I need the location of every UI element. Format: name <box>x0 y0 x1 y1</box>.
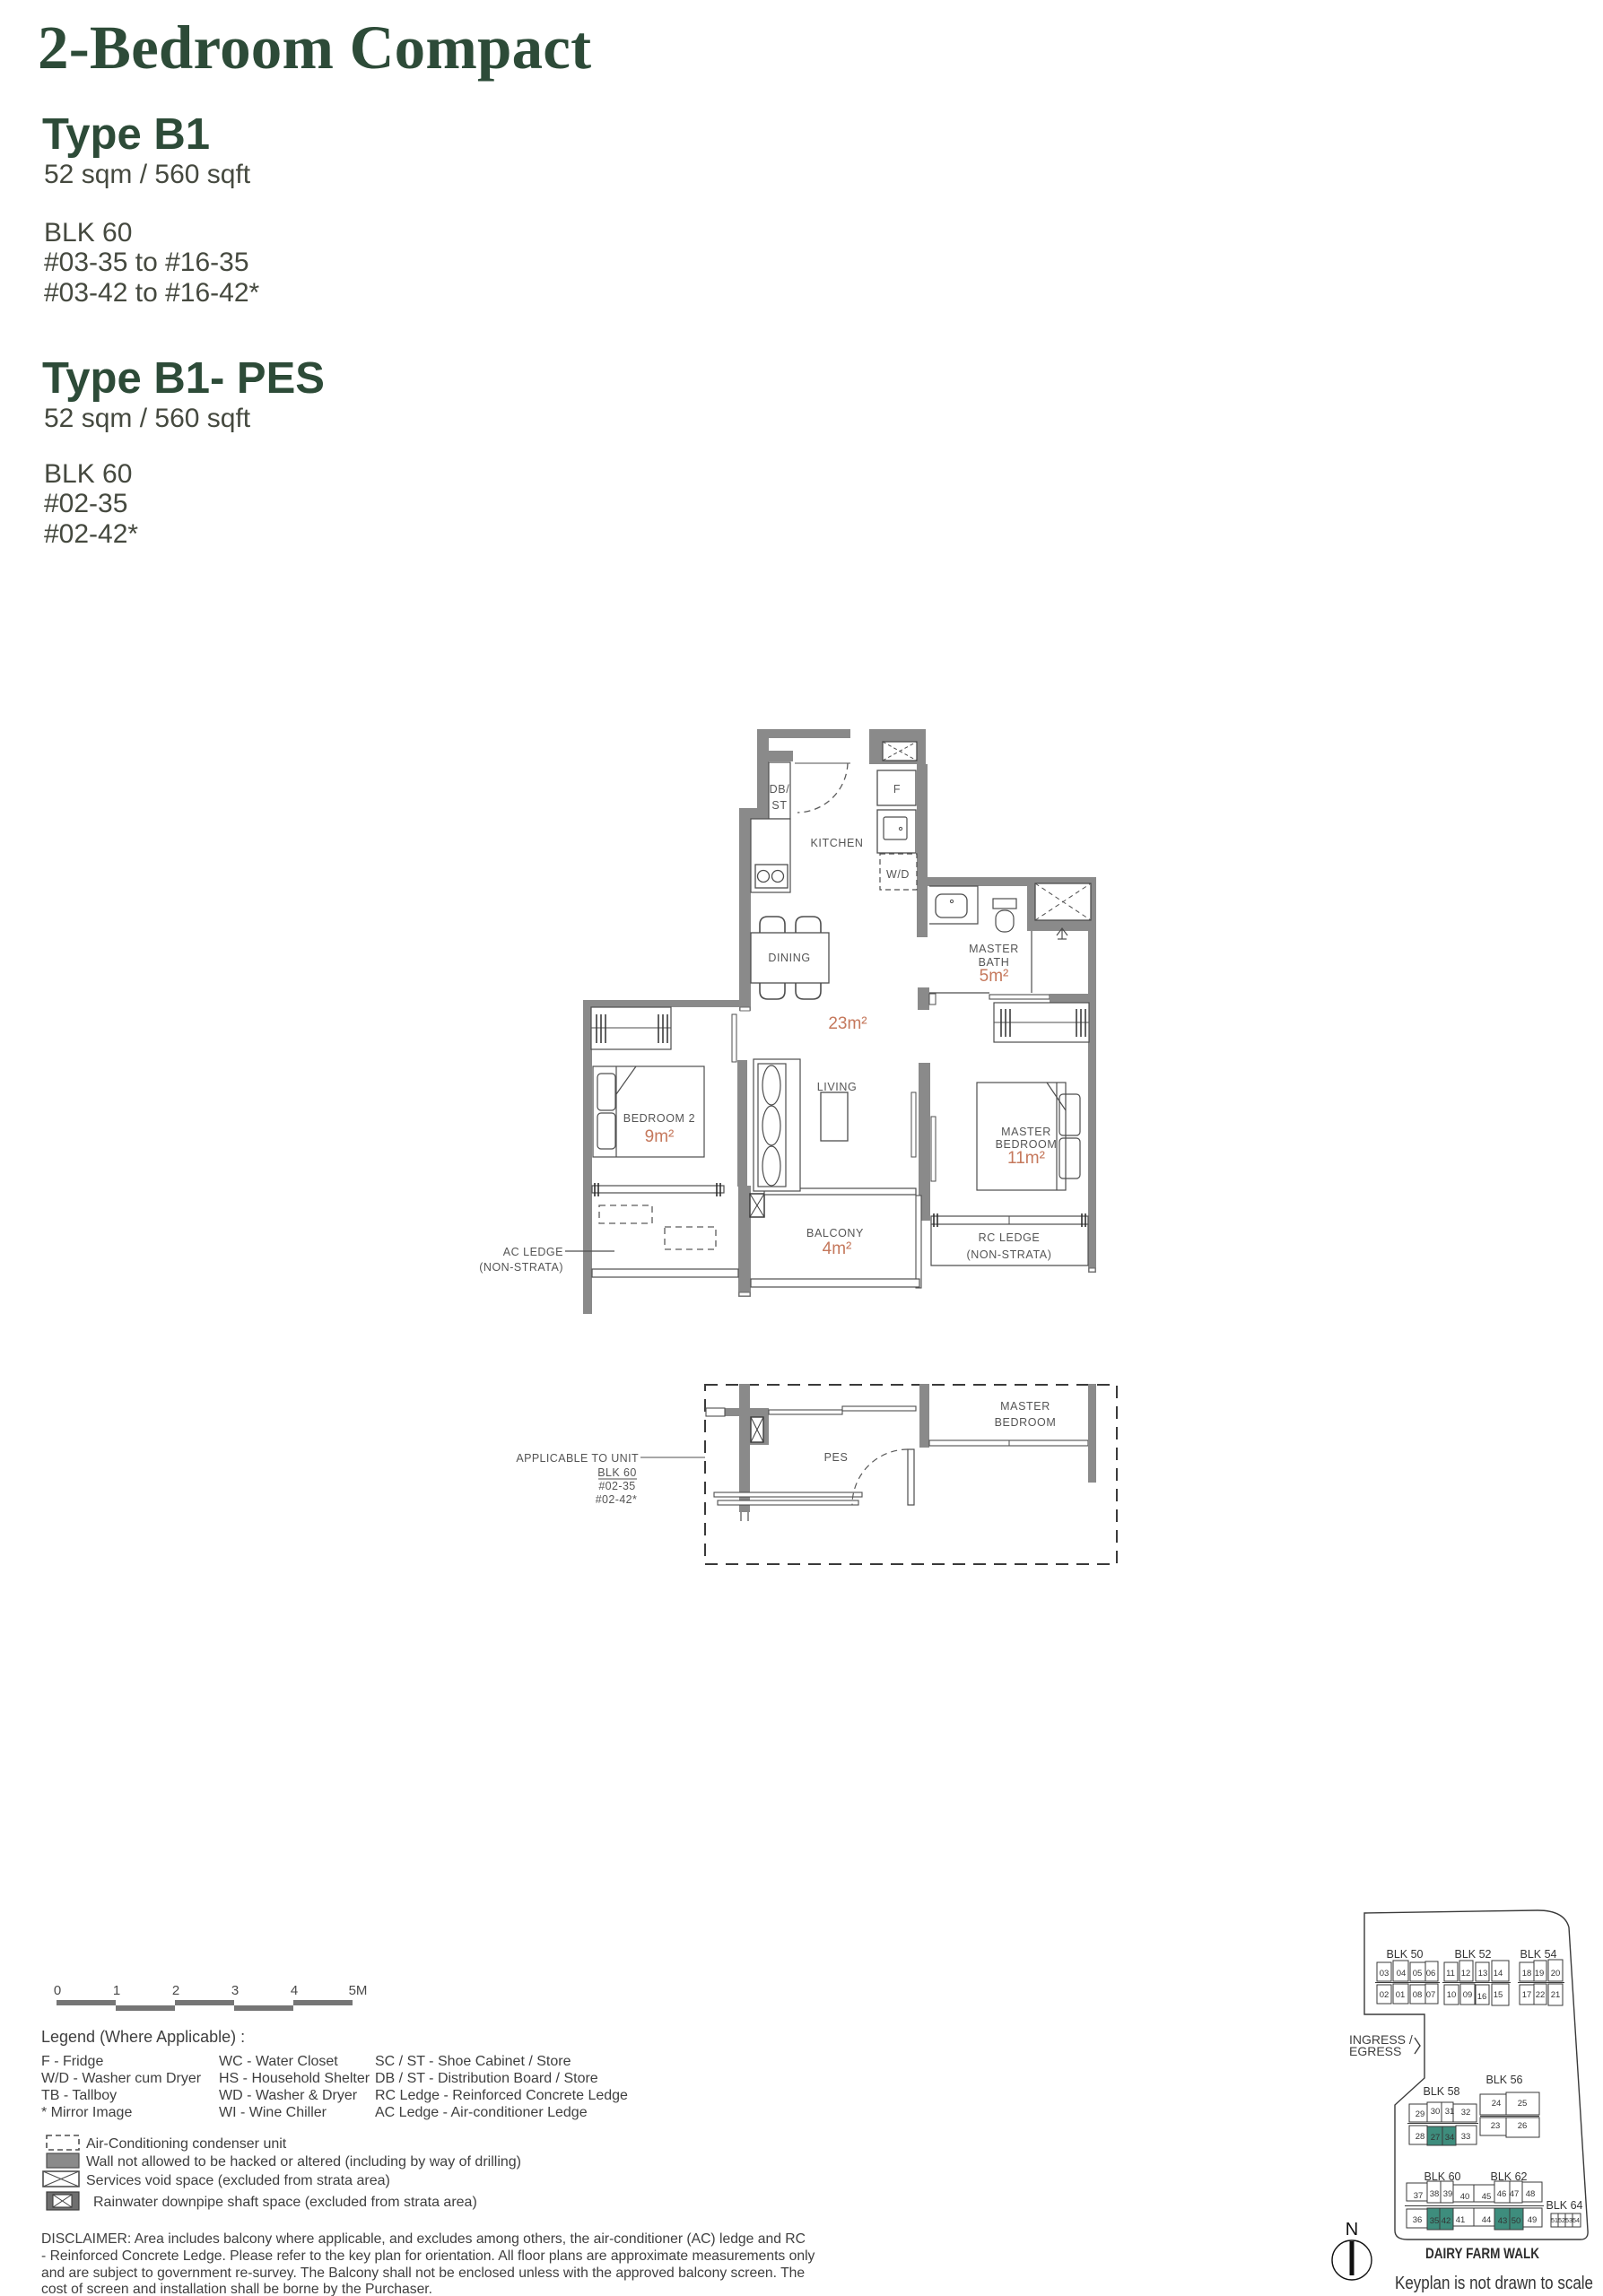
svg-text:42: 42 <box>1442 2216 1451 2226</box>
svg-text:09: 09 <box>1463 1990 1473 2000</box>
svg-text:LIVING: LIVING <box>817 1081 858 1093</box>
svg-text:EGRESS: EGRESS <box>1349 2044 1401 2058</box>
svg-text:RC LEDGE: RC LEDGE <box>979 1231 1041 1244</box>
svg-text:Keyplan is not drawn to scale: Keyplan is not drawn to scale <box>1395 2274 1593 2293</box>
svg-text:38: 38 <box>1430 2189 1440 2199</box>
svg-text:2-Bedroom Compact: 2-Bedroom Compact <box>38 13 591 82</box>
svg-text:MASTER: MASTER <box>1001 1126 1051 1138</box>
svg-text:MASTER: MASTER <box>1000 1400 1050 1413</box>
svg-text:#03-42 to #16-42*: #03-42 to #16-42* <box>44 278 260 308</box>
svg-text:(NON-STRATA): (NON-STRATA) <box>479 1261 563 1274</box>
svg-text:2: 2 <box>172 1983 179 1998</box>
svg-text:53: 53 <box>1565 2218 1573 2224</box>
svg-text:54: 54 <box>1573 2218 1580 2224</box>
svg-text:21: 21 <box>1551 1990 1561 2000</box>
svg-text:24: 24 <box>1492 2099 1502 2109</box>
svg-text:05: 05 <box>1413 1969 1423 1979</box>
svg-text:W/D - Washer cum Dryer: W/D - Washer cum Dryer <box>41 2071 202 2086</box>
svg-text:- Reinforced Concrete Ledge. P: - Reinforced Concrete Ledge. Please refe… <box>41 2248 815 2264</box>
svg-text:34: 34 <box>1445 2133 1455 2143</box>
svg-text:AC Ledge - Air-conditioner Led: AC Ledge - Air-conditioner Ledge <box>375 2105 588 2120</box>
svg-text:#02-35: #02-35 <box>598 1480 635 1492</box>
svg-text:5m²: 5m² <box>980 967 1009 986</box>
svg-text:DB / ST - Distribution Board /: DB / ST - Distribution Board / Store <box>375 2071 598 2086</box>
svg-text:* Mirror Image: * Mirror Image <box>41 2105 132 2120</box>
svg-text:37: 37 <box>1414 2191 1424 2201</box>
svg-text:52 sqm / 560 sqft: 52 sqm / 560 sqft <box>44 404 251 433</box>
svg-text:BLK 64: BLK 64 <box>1546 2199 1582 2212</box>
svg-text:41: 41 <box>1456 2215 1466 2225</box>
svg-text:4m²: 4m² <box>823 1239 852 1258</box>
svg-text:Wall not allowed to be hacked: Wall not allowed to be hacked or altered… <box>86 2154 521 2170</box>
svg-text:06: 06 <box>1426 1969 1436 1979</box>
svg-text:BLK 60: BLK 60 <box>44 218 132 248</box>
svg-text:43: 43 <box>1498 2216 1508 2226</box>
svg-text:0: 0 <box>54 1983 61 1998</box>
svg-text:WD - Washer & Dryer: WD - Washer & Dryer <box>219 2088 358 2103</box>
svg-text:18: 18 <box>1522 1969 1532 1979</box>
svg-text:AC LEDGE: AC LEDGE <box>503 1246 563 1258</box>
svg-text:46: 46 <box>1497 2189 1507 2199</box>
svg-text:and are subject to government: and are subject to government re-survey.… <box>41 2266 805 2281</box>
svg-text:1: 1 <box>113 1983 120 1998</box>
svg-text:Services void space (excluded: Services void space (excluded from strat… <box>86 2173 390 2188</box>
svg-text:26: 26 <box>1518 2121 1528 2131</box>
svg-text:3: 3 <box>231 1983 239 1998</box>
svg-text:Legend (Where Applicable) :: Legend (Where Applicable) : <box>41 2028 245 2046</box>
svg-text:19: 19 <box>1535 1969 1545 1979</box>
svg-text:04: 04 <box>1397 1969 1407 1979</box>
svg-text:#02-35: #02-35 <box>44 489 127 518</box>
svg-text:HS - Household Shelter: HS - Household Shelter <box>219 2071 370 2086</box>
svg-text:48: 48 <box>1526 2189 1536 2199</box>
svg-text:RC Ledge - Reinforced Concrete: RC Ledge - Reinforced Concrete Ledge <box>375 2088 628 2103</box>
svg-text:BEDROOM 2: BEDROOM 2 <box>623 1112 695 1125</box>
svg-text:10: 10 <box>1447 1990 1457 2000</box>
svg-text:F: F <box>893 783 901 796</box>
svg-text:F - Fridge: F - Fridge <box>41 2054 103 2069</box>
svg-text:47: 47 <box>1510 2189 1520 2199</box>
svg-text:DAIRY FARM WALK: DAIRY FARM WALK <box>1425 2245 1540 2262</box>
svg-text:9m²: 9m² <box>645 1127 675 1146</box>
svg-text:4: 4 <box>291 1983 298 1998</box>
svg-text:#02-42*: #02-42* <box>44 519 138 549</box>
svg-text:29: 29 <box>1416 2109 1425 2119</box>
svg-text:31: 31 <box>1445 2107 1455 2117</box>
svg-text:ST: ST <box>771 799 787 812</box>
svg-text:33: 33 <box>1461 2132 1471 2142</box>
svg-text:23: 23 <box>1491 2121 1501 2131</box>
svg-text:32: 32 <box>1461 2108 1471 2118</box>
svg-text:13: 13 <box>1478 1969 1488 1979</box>
svg-text:DB/: DB/ <box>770 783 790 796</box>
svg-text:49: 49 <box>1528 2215 1538 2225</box>
svg-text:SC / ST - Shoe Cabinet / Store: SC / ST - Shoe Cabinet / Store <box>375 2054 571 2069</box>
svg-text:01: 01 <box>1396 1990 1406 2000</box>
svg-text:11m²: 11m² <box>1007 1149 1045 1168</box>
svg-text:40: 40 <box>1460 2192 1470 2202</box>
svg-text:17: 17 <box>1522 1990 1532 2000</box>
svg-text:52 sqm / 560 sqft: 52 sqm / 560 sqft <box>44 160 251 189</box>
svg-text:cost of screen and installatio: cost of screen and installation shall be… <box>41 2282 432 2296</box>
svg-text:52: 52 <box>1558 2218 1565 2224</box>
svg-text:35: 35 <box>1430 2216 1440 2226</box>
svg-text:W/D: W/D <box>886 868 910 881</box>
svg-text:25: 25 <box>1518 2099 1528 2109</box>
svg-text:WI - Wine Chiller: WI - Wine Chiller <box>219 2105 327 2120</box>
svg-text:BALCONY: BALCONY <box>806 1227 864 1239</box>
svg-text:WC - Water Closet: WC - Water Closet <box>219 2054 338 2069</box>
svg-text:07: 07 <box>1426 1990 1436 2000</box>
svg-text:BLK 56: BLK 56 <box>1485 2074 1522 2086</box>
svg-text:#02-42*: #02-42* <box>596 1493 638 1506</box>
svg-text:BLK 50: BLK 50 <box>1386 1948 1423 1961</box>
svg-text:BLK 52: BLK 52 <box>1454 1948 1491 1961</box>
svg-text:DINING: DINING <box>768 952 810 964</box>
svg-text:27: 27 <box>1431 2133 1441 2143</box>
svg-text:5M: 5M <box>349 1983 368 1998</box>
svg-text:KITCHEN: KITCHEN <box>810 837 863 849</box>
svg-text:Type B1- PES: Type B1- PES <box>42 354 325 403</box>
svg-text:20: 20 <box>1551 1969 1561 1979</box>
svg-text:14: 14 <box>1494 1969 1503 1979</box>
svg-text:Type B1: Type B1 <box>42 110 210 159</box>
svg-text:DISCLAIMER: Area includes balc: DISCLAIMER: Area includes balcony where … <box>41 2231 806 2247</box>
svg-text:23m²: 23m² <box>828 1014 867 1033</box>
svg-text:30: 30 <box>1431 2107 1441 2117</box>
svg-text:PES: PES <box>824 1451 849 1464</box>
svg-text:12: 12 <box>1461 1969 1471 1979</box>
svg-text:36: 36 <box>1413 2215 1423 2225</box>
svg-text:BLK 60: BLK 60 <box>597 1466 636 1479</box>
svg-text:03: 03 <box>1380 1969 1390 1979</box>
svg-text:MASTER: MASTER <box>969 943 1019 955</box>
svg-text:39: 39 <box>1443 2189 1453 2199</box>
svg-text:Rainwater downpipe shaft space: Rainwater downpipe shaft space (excluded… <box>93 2195 477 2210</box>
svg-text:Air-Conditioning condenser uni: Air-Conditioning condenser unit <box>86 2136 287 2152</box>
svg-text:BEDROOM: BEDROOM <box>995 1416 1057 1429</box>
svg-text:BLK 60: BLK 60 <box>44 459 132 489</box>
svg-text:45: 45 <box>1482 2192 1492 2202</box>
svg-text:51: 51 <box>1551 2218 1558 2224</box>
svg-text:#03-35 to #16-35: #03-35 to #16-35 <box>44 248 249 277</box>
svg-text:BLK 58: BLK 58 <box>1423 2085 1459 2098</box>
svg-text:APPLICABLE TO UNIT: APPLICABLE TO UNIT <box>516 1452 639 1465</box>
svg-text:11: 11 <box>1446 1969 1455 1979</box>
svg-text:N: N <box>1346 2220 1358 2239</box>
svg-text:15: 15 <box>1494 1990 1503 2000</box>
svg-text:08: 08 <box>1413 1990 1423 2000</box>
svg-text:22: 22 <box>1536 1990 1546 2000</box>
svg-text:16: 16 <box>1477 1992 1487 2002</box>
svg-text:BLK 54: BLK 54 <box>1520 1948 1556 1961</box>
svg-text:(NON-STRATA): (NON-STRATA) <box>967 1248 1052 1261</box>
svg-text:02: 02 <box>1380 1990 1390 2000</box>
svg-text:28: 28 <box>1416 2132 1425 2142</box>
svg-text:TB - Tallboy: TB - Tallboy <box>41 2088 117 2103</box>
svg-text:50: 50 <box>1512 2216 1521 2226</box>
svg-text:44: 44 <box>1482 2215 1492 2225</box>
